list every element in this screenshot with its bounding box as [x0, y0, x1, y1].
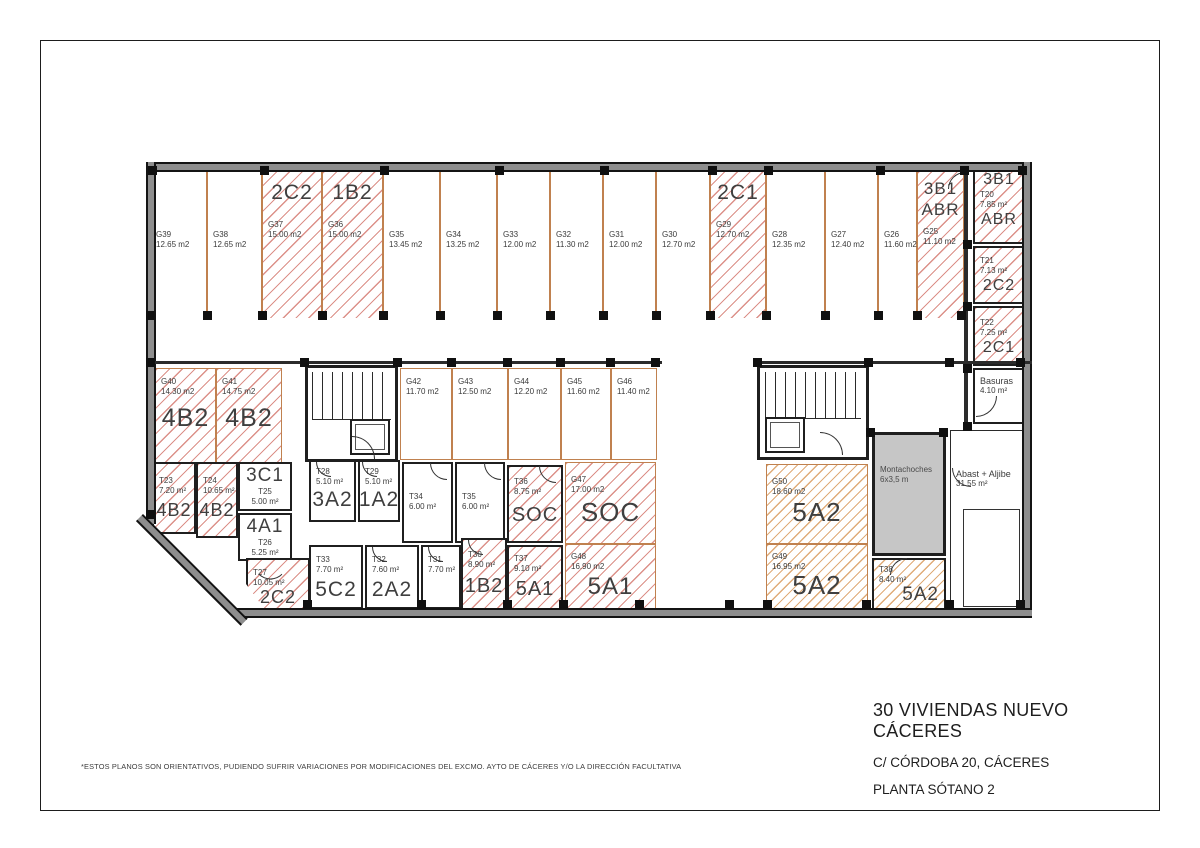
disclaimer-text: *ESTOS PLANOS SON ORIENTATIVOS, PUDIENDO… — [81, 762, 681, 771]
room-t32-label: 7.60 m² — [367, 565, 399, 575]
room-t20-label: T20 — [975, 190, 994, 200]
room-g35: G3513.45 m2 — [383, 172, 440, 318]
room-g45-label: 11.60 m2 — [562, 387, 600, 397]
column — [963, 422, 972, 431]
room-g36-label: G36 — [323, 220, 343, 230]
wall — [150, 361, 662, 364]
column — [939, 428, 948, 437]
room-g49-label: 5A2 — [792, 572, 841, 599]
room-t24-label: T24 — [198, 476, 217, 486]
column — [606, 358, 615, 367]
room-g26-label: G26 — [879, 230, 899, 240]
room-g46-label: G46 — [612, 377, 632, 387]
wall — [236, 608, 1032, 618]
room-g30: G3012.70 m2 — [656, 172, 710, 318]
room-g34-label: 13.25 m2 — [441, 240, 479, 250]
room-g32-label: 11.30 m2 — [551, 240, 589, 250]
room-g37: 2C2G3715.00 m2 — [262, 172, 322, 318]
room-g42: G4211.70 m2 — [400, 368, 452, 460]
column — [260, 166, 269, 175]
room-g38: G3812.65 m2 — [207, 172, 262, 318]
room-t35-label: 6.00 m² — [457, 502, 489, 512]
room-g41: G4114.75 m24B2 — [216, 368, 282, 465]
room-g27-label: 12.40 m2 — [826, 240, 864, 250]
room-g35-label: G35 — [384, 230, 404, 240]
column — [546, 311, 555, 320]
column — [1018, 166, 1027, 175]
room-t30-label: 8.90 m² — [463, 560, 495, 570]
room-g31-label: G31 — [604, 230, 624, 240]
room-g33-label: G33 — [498, 230, 518, 240]
room-g48-label: 16.90 m2 — [566, 562, 604, 572]
room-g50-label: 5A2 — [792, 499, 841, 526]
room-g41-label: G41 — [217, 377, 237, 387]
room-g30-label: G30 — [657, 230, 677, 240]
room-g36: 1B2G3615.00 m2 — [322, 172, 383, 318]
column — [146, 311, 155, 320]
column — [379, 311, 388, 320]
room-g26-label: 11.60 m2 — [879, 240, 917, 250]
column — [599, 311, 608, 320]
room-g39-label: 12.65 m2 — [151, 240, 189, 250]
room-g49: G4916.95 m25A2 — [766, 544, 868, 610]
column — [1016, 358, 1025, 367]
room-t37-label: 5A1 — [516, 579, 555, 600]
column — [417, 600, 426, 609]
room-g27-label: G27 — [826, 230, 846, 240]
room-t28-label: 3A2 — [312, 489, 352, 511]
column — [945, 358, 954, 367]
room-t38: T388.40 m²5A2 — [872, 558, 946, 610]
room-g40: G4014.30 m24B2 — [155, 368, 216, 465]
room-t22: T227.25 m²2C1 — [973, 306, 1025, 366]
room-t22-label: 2C1 — [983, 340, 1015, 357]
room-montacoches-label: Montachoches — [875, 465, 932, 475]
room-g43-label: 12.50 m2 — [453, 387, 491, 397]
room-g43-label: G43 — [453, 377, 473, 387]
column — [652, 311, 661, 320]
room-g50: G5018.60 m25A2 — [766, 464, 868, 544]
room-g26: G2611.60 m2 — [878, 172, 917, 318]
column — [393, 358, 402, 367]
room-g44: G4412.20 m2 — [508, 368, 561, 460]
column — [495, 166, 504, 175]
room-t37-label: 9.10 m² — [509, 564, 541, 574]
room-t24-label: 10.65 m² — [198, 486, 235, 496]
column — [635, 600, 644, 609]
room-t22-label: 7.25 m² — [975, 328, 1007, 338]
room-g47-label: SOC — [581, 499, 640, 526]
room-g29: 2C1G2912.70 m2 — [710, 172, 766, 318]
column — [764, 166, 773, 175]
room-g50-label: G50 — [767, 477, 787, 487]
room-g46: G4611.40 m2 — [611, 368, 657, 460]
room-t37-label: T37 — [509, 554, 528, 564]
drawing-sheet: G3912.65 m2G3812.65 m22C2G3715.00 m21B2G… — [0, 0, 1200, 848]
room-t26-label: 5.25 m² — [251, 548, 278, 558]
column — [963, 240, 972, 249]
room-g44-label: 12.20 m2 — [509, 387, 547, 397]
wall — [755, 361, 1032, 364]
room-g34: G3413.25 m2 — [440, 172, 497, 318]
room-t36-label: T36 — [509, 477, 528, 487]
column — [556, 358, 565, 367]
column — [146, 510, 155, 519]
column — [874, 311, 883, 320]
room-basuras-label: 4.10 m² — [975, 386, 1007, 396]
room-g42-label: G42 — [401, 377, 421, 387]
column — [380, 166, 389, 175]
room-g25-label: ABR — [922, 201, 960, 219]
column — [963, 302, 972, 311]
room-g37-label: 15.00 m2 — [263, 230, 301, 240]
room-g47-label: 17.00 m2 — [566, 485, 604, 495]
wall — [1022, 162, 1032, 618]
column — [821, 311, 830, 320]
room-g39: G3912.65 m2 — [150, 172, 207, 318]
room-g28-label: G28 — [767, 230, 787, 240]
column — [493, 311, 502, 320]
room-t25-label: 3C1 — [246, 466, 284, 486]
room-t32-label: 2A2 — [372, 579, 412, 601]
room-g49-label: G49 — [767, 552, 787, 562]
room-g42-label: 11.70 m2 — [401, 387, 439, 397]
room-t20-label: 3B1 — [983, 172, 1014, 189]
room-t21: T217.13 m²2C2 — [973, 246, 1025, 304]
room-basuras-label: Basuras — [975, 376, 1013, 386]
title-block: 30 VIVIENDAS NUEVO CÁCERES C/ CÓRDOBA 20… — [873, 700, 1153, 797]
room-g28: G2812.35 m2 — [766, 172, 825, 318]
column — [708, 166, 717, 175]
column — [945, 600, 954, 609]
room-t27: T2710.05 m²2C2 — [246, 558, 310, 610]
project-address: C/ CÓRDOBA 20, CÁCERES — [873, 755, 1153, 770]
column — [600, 166, 609, 175]
column — [1016, 600, 1025, 609]
room-g40-label: 14.30 m2 — [156, 387, 194, 397]
column — [762, 311, 771, 320]
room-montacoches-label: 6x3,5 m — [875, 475, 908, 485]
room-t22-label: T22 — [975, 318, 994, 328]
column — [503, 600, 512, 609]
room-t26: 4A1T265.25 m² — [238, 513, 292, 561]
room-abast: Abast + Aljibe31.55 m² — [950, 430, 1030, 616]
column — [963, 364, 972, 373]
room-g33: G3312.00 m2 — [497, 172, 550, 318]
room-g25: 3B1ABRG2511.10 m2 — [917, 172, 964, 318]
room-g47-label: G47 — [566, 475, 586, 485]
wall — [964, 168, 968, 424]
room-t37: T379.10 m²5A1 — [507, 545, 563, 610]
column — [303, 600, 312, 609]
room-g41-label: 14.75 m2 — [217, 387, 255, 397]
room-g40-label: 4B2 — [162, 405, 209, 431]
room-g38-label: G38 — [208, 230, 228, 240]
column — [876, 166, 885, 175]
room-t34-label: T34 — [404, 492, 423, 502]
column — [436, 311, 445, 320]
room-t38-label: 5A2 — [902, 585, 944, 605]
room-t20: 3B1T207.85 m²ABR — [973, 168, 1025, 244]
room-g35-label: 13.45 m2 — [384, 240, 422, 250]
room-g36-label: 15.00 m2 — [323, 230, 361, 240]
room-t21-label: T21 — [975, 256, 994, 266]
room-g36-label: 1B2 — [332, 182, 372, 204]
column — [763, 600, 772, 609]
column — [753, 358, 762, 367]
room-g41-label: 4B2 — [225, 405, 272, 431]
column — [706, 311, 715, 320]
room-g47: G4717.00 m2SOC — [565, 462, 656, 544]
room-t30: T308.90 m²1B2 — [461, 538, 507, 610]
room-g30-label: 12.70 m2 — [657, 240, 695, 250]
room-t25: 3C1T255.00 m² — [238, 462, 292, 511]
room-t21-label: 7.13 m² — [975, 266, 1007, 276]
room-g25-label: 11.10 m2 — [918, 237, 956, 247]
room-t27-label: 2C2 — [260, 588, 296, 607]
room-g45-label: G45 — [562, 377, 582, 387]
room-t23-label: 7.20 m² — [154, 486, 186, 496]
room-t29-label: 5.10 m² — [360, 477, 392, 487]
project-title: 30 VIVIENDAS NUEVO CÁCERES — [873, 700, 1153, 742]
staircase-2 — [757, 365, 869, 460]
room-g32: G3211.30 m2 — [550, 172, 603, 318]
room-g33-label: 12.00 m2 — [498, 240, 536, 250]
room-t28-label: 5.10 m² — [311, 477, 343, 487]
room-g31-label: 12.00 m2 — [604, 240, 642, 250]
room-t26-label: 4A1 — [247, 517, 284, 537]
room-g37-label: 2C2 — [271, 182, 313, 204]
room-t26-label: T26 — [258, 538, 272, 548]
wall — [146, 162, 156, 524]
room-t31-label: 7.70 m² — [423, 565, 455, 575]
room-g31: G3112.00 m2 — [603, 172, 656, 318]
room-t20-label: 7.85 m² — [975, 200, 1007, 210]
room-t20-label: ABR — [981, 212, 1017, 229]
room-t23-label: 4B2 — [156, 501, 191, 520]
room-g27: G2712.40 m2 — [825, 172, 878, 318]
room-g40-label: G40 — [156, 377, 176, 387]
column — [651, 358, 660, 367]
column — [960, 166, 969, 175]
room-t36-label: SOC — [512, 505, 558, 526]
room-t34-label: 6.00 m² — [404, 502, 436, 512]
room-t28: T285.10 m²3A2 — [309, 460, 356, 522]
column — [503, 358, 512, 367]
elevator-icon — [765, 417, 805, 453]
room-g48-label: G48 — [566, 552, 586, 562]
plan-level-label: PLANTA SÓTANO 2 — [873, 782, 1153, 797]
room-t36-label: 8.75 m² — [509, 487, 541, 497]
room-t33-label: 5C2 — [315, 579, 357, 601]
column — [203, 311, 212, 320]
column — [957, 311, 966, 320]
room-t25-label: T25 — [258, 487, 272, 497]
stairs-icon — [765, 372, 860, 419]
room-g48-label: 5A1 — [588, 574, 634, 599]
room-g46-label: 11.40 m2 — [612, 387, 650, 397]
room-g37-label: G37 — [263, 220, 283, 230]
room-g32-label: G32 — [551, 230, 571, 240]
room-t23-label: T23 — [154, 476, 173, 486]
room-montacoches: Montachoches6x3,5 m — [872, 432, 946, 556]
column — [318, 311, 327, 320]
column — [866, 428, 875, 437]
room-t35-label: T35 — [457, 492, 476, 502]
column — [300, 358, 309, 367]
room-g28-label: 12.35 m2 — [767, 240, 805, 250]
column — [258, 311, 267, 320]
room-t33-label: 7.70 m² — [311, 565, 343, 575]
room-g34-label: G34 — [441, 230, 461, 240]
room-g25-label: G25 — [918, 227, 938, 237]
column — [148, 166, 157, 175]
water-tank — [963, 509, 1020, 607]
room-g38-label: 12.65 m2 — [208, 240, 246, 250]
stairs-icon — [312, 372, 390, 420]
room-t24: T2410.65 m²4B2 — [196, 462, 238, 538]
room-t33-label: T33 — [311, 555, 330, 565]
column — [559, 600, 568, 609]
room-t29-label: 1A2 — [359, 489, 399, 511]
room-g45: G4511.60 m2 — [561, 368, 611, 460]
column — [913, 311, 922, 320]
room-t23: T237.20 m²4B2 — [152, 462, 196, 534]
room-t24-label: 4B2 — [199, 501, 234, 520]
room-g50-label: 18.60 m2 — [767, 487, 805, 497]
room-g29-label: 2C1 — [717, 182, 759, 204]
column — [146, 358, 155, 367]
room-g43: G4312.50 m2 — [452, 368, 508, 460]
wall — [146, 162, 1032, 172]
column — [725, 600, 734, 609]
column — [864, 358, 873, 367]
room-t33: T337.70 m²5C2 — [309, 545, 363, 609]
room-t21-label: 2C2 — [983, 278, 1015, 295]
column — [447, 358, 456, 367]
column — [862, 600, 871, 609]
room-t25-label: 5.00 m² — [251, 497, 278, 507]
room-g29-label: 12.70 m2 — [711, 230, 749, 240]
room-g44-label: G44 — [509, 377, 529, 387]
room-g29-label: G29 — [711, 220, 731, 230]
room-t30-label: 1B2 — [465, 576, 504, 597]
